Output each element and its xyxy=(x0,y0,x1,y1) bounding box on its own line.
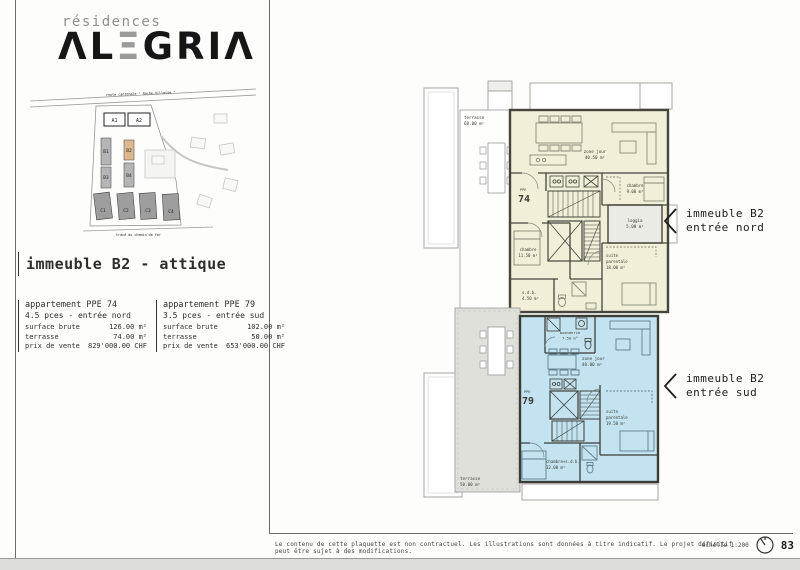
section-title: immeuble B2 - attique xyxy=(18,252,226,276)
annotation-text: immeuble B2 entrée sud xyxy=(686,372,764,400)
row-label: prix de vente xyxy=(163,342,218,352)
apartment-name: appartement PPE 74 xyxy=(25,300,147,311)
annotation-line2: entrée nord xyxy=(686,221,764,235)
chevron-left-icon xyxy=(663,206,678,236)
footer-right: échelle 1:200 83 xyxy=(702,535,794,555)
ppe-74-label: PPE xyxy=(520,188,526,192)
logo-part1: ΛL xyxy=(58,25,116,68)
chambre1-74-area: 9.00 m² xyxy=(627,189,644,194)
site-road-top-label: route cantonale " Roche-Villette " xyxy=(106,91,176,97)
ppe-79-label: PPE xyxy=(524,390,530,394)
site-label-b2: B2 xyxy=(126,148,132,154)
chambre2-74-area: 11.50 m² xyxy=(518,253,537,258)
suite-79-label1: suite xyxy=(606,409,619,414)
row-value: 50.00 m² xyxy=(251,333,285,343)
chambre2-74-label: chambre xyxy=(520,247,537,252)
page-left-rule xyxy=(15,0,16,558)
chambre-79-area: 12.00 m² xyxy=(546,465,565,470)
site-label-c3: C3 xyxy=(145,208,151,214)
brochure-page: résidences ΛLΞGRIΛ route cantonale " Roc… xyxy=(0,0,800,570)
logo-letter-e: Ξ xyxy=(116,25,142,68)
loggia-74-area: 5.00 m² xyxy=(626,224,644,229)
chambre1-74-label: chambre xyxy=(627,183,644,188)
site-label-a1: A1 xyxy=(111,118,117,124)
apartment-info-blocks: appartement PPE 74 4.5 pces - entrée nor… xyxy=(18,300,285,352)
suite-74-label1: suite xyxy=(606,253,619,258)
suite-79-area: 19.50 m² xyxy=(606,421,625,426)
apartment-79: buanderie 7.50 m² zone jour 40.00 m² sui… xyxy=(520,316,658,482)
site-neighbor-features xyxy=(145,114,238,208)
annotation-line1: immeuble B2 xyxy=(686,372,764,386)
terrace-79-area: 50.00 m² xyxy=(460,482,480,487)
zone-jour-74-label: zone jour xyxy=(584,149,607,154)
site-map: route cantonale " Roche-Villette " tracé… xyxy=(28,84,258,242)
site-label-c4: C4 xyxy=(168,209,174,215)
site-label-c1: C1 xyxy=(100,208,106,214)
chevron-left-icon xyxy=(663,371,678,401)
north-arrow-icon xyxy=(755,535,775,555)
apartment-block-ppe74: appartement PPE 74 4.5 pces - entrée nor… xyxy=(18,300,147,352)
apartment-rooms: 4.5 pces - entrée nord xyxy=(25,311,147,321)
sdb-74-label: s.d.b. xyxy=(522,290,536,295)
logo-part2: GRIΛ xyxy=(143,25,256,68)
annotation-entree-sud: immeuble B2 entrée sud xyxy=(663,371,764,401)
buanderie-area: 7.50 m² xyxy=(562,336,578,341)
row-label: terrasse xyxy=(163,333,197,343)
site-label-b1: B1 xyxy=(103,149,109,155)
site-label-b4: B4 xyxy=(126,173,132,179)
page-bottom-edge xyxy=(0,558,800,570)
row-value: 74.00 m² xyxy=(113,333,147,343)
terrace-74-table xyxy=(488,143,505,193)
footer-rule xyxy=(269,533,793,534)
buanderie-label: buanderie xyxy=(560,330,581,335)
footer-disclaimer: Le contenu de cette plaquette est non co… xyxy=(275,541,735,555)
scale-label: échelle 1:200 xyxy=(702,542,749,549)
site-label-c2: C2 xyxy=(123,208,129,214)
suite-79-label2: parentale xyxy=(606,415,628,420)
apartment-block-ppe79: appartement PPE 79 3.5 pces - entrée sud… xyxy=(156,300,285,352)
terrace-79-label: terrasse xyxy=(460,476,481,481)
terrace-79: terrasse 50.00 m² xyxy=(455,308,520,492)
floor-plan: terrasse 68.00 m² xyxy=(410,55,790,515)
column-divider xyxy=(269,0,270,533)
row-value: 126.00 m² xyxy=(109,323,147,333)
suite-74-label2: parentale xyxy=(606,259,628,264)
terrace-79-table xyxy=(488,327,505,375)
site-label-b3: B3 xyxy=(103,175,109,181)
loggia-74-label: loggia xyxy=(627,218,643,223)
row-label: surface brute xyxy=(163,323,218,333)
apartment-rooms: 3.5 pces - entrée sud xyxy=(163,311,285,321)
annotation-line1: immeuble B2 xyxy=(686,207,764,221)
row-label: terrasse xyxy=(25,333,59,343)
suite-74-area: 18.00 m² xyxy=(606,265,625,270)
sdb-74-area: 4.50 m² xyxy=(522,296,539,301)
site-label-a2: A2 xyxy=(136,118,142,124)
terrace-74: terrasse 68.00 m² xyxy=(460,110,513,310)
zone-jour-79-label: zone jour xyxy=(582,356,605,361)
row-value: 102.00 m² xyxy=(247,323,285,333)
site-buildings-c xyxy=(93,192,179,220)
zone-jour-74-area: 40.50 m² xyxy=(585,155,605,160)
ppe-79-number: 79 xyxy=(522,396,534,407)
ppe-74-number: 74 xyxy=(518,194,530,205)
row-label: prix de vente xyxy=(25,342,80,352)
annotation-entree-nord: immeuble B2 entrée nord xyxy=(663,206,764,236)
row-value: 829'000.00 CHF xyxy=(88,342,147,352)
row-value: 653'000.00 CHF xyxy=(226,342,285,352)
logo-wordmark: ΛLΞGRIΛ xyxy=(58,28,256,65)
terrace-74-label: terrasse xyxy=(464,115,485,120)
row-label: surface brute xyxy=(25,323,80,333)
annotation-line2: entrée sud xyxy=(686,386,764,400)
terrace-74-area: 68.00 m² xyxy=(464,121,484,126)
apartment-74: zone jour 40.50 m² chambre 9.00 m² loggi… xyxy=(510,110,668,312)
chambre-79-label: chambre+s.d.b. xyxy=(546,459,580,464)
zone-jour-79-area: 40.00 m² xyxy=(582,362,602,367)
annotation-text: immeuble B2 entrée nord xyxy=(686,207,764,235)
page-number: 83 xyxy=(781,539,794,552)
logo: résidences ΛLΞGRIΛ xyxy=(58,14,256,65)
apartment-name: appartement PPE 79 xyxy=(163,300,285,311)
site-road-bottom-label: tracé du chemin de fer xyxy=(116,233,161,237)
